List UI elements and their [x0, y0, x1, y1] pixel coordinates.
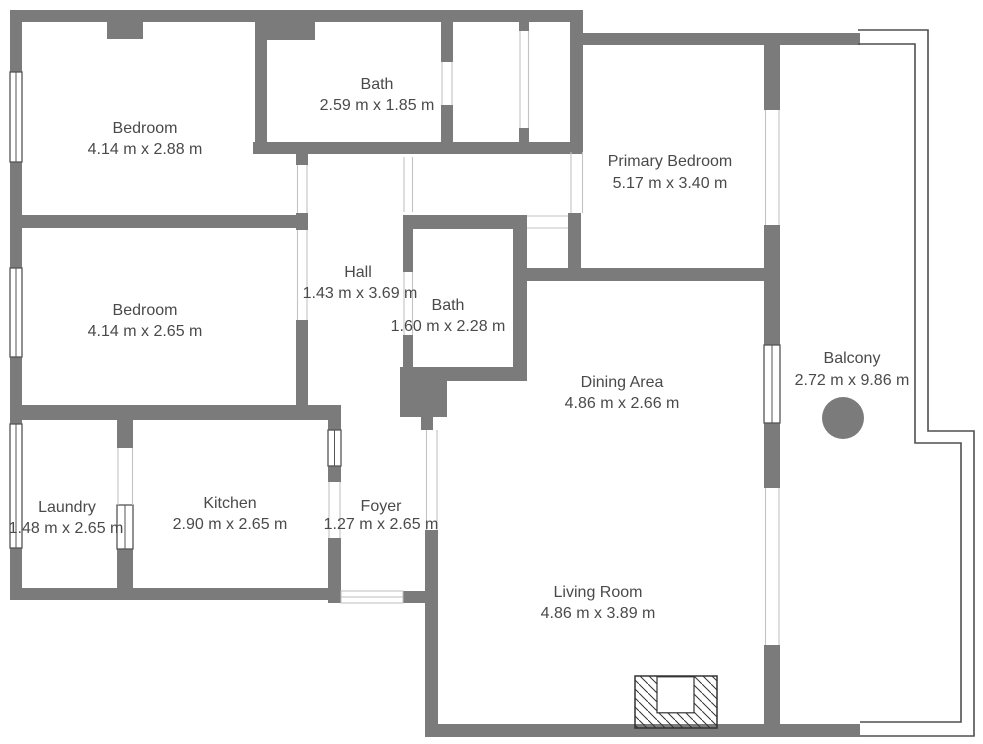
room-dims: 1.27 m x 2.65 m — [324, 516, 439, 533]
wall-segment — [764, 225, 780, 345]
wall-segment — [421, 417, 433, 430]
window — [10, 268, 22, 357]
room-name: Bath — [432, 297, 465, 314]
room-label-living-room: Living Room 4.86 m x 3.89 m — [541, 584, 656, 622]
room-dims: 4.14 m x 2.65 m — [88, 323, 203, 340]
room-label-hall: Hall 1.43 m x 3.69 m — [303, 264, 418, 302]
door-opening — [298, 165, 308, 213]
room-label-bedroom-2: Bedroom 4.14 m x 2.65 m — [88, 302, 203, 340]
door-opening — [404, 157, 413, 212]
wall-segment — [764, 43, 780, 110]
room-label-laundry: Laundry 1.48 m x 2.65 m — [9, 499, 124, 537]
door-opening — [118, 448, 133, 505]
door-opening — [571, 152, 583, 213]
room-dims: 4.86 m x 3.89 m — [541, 605, 656, 622]
wall-segment — [425, 530, 438, 737]
wall-segment — [296, 152, 308, 165]
wall-segment — [296, 213, 308, 230]
door-opening — [766, 488, 780, 645]
wall-segment — [328, 466, 341, 482]
floor-plan: Bedroom 4.14 m x 2.88 m Bath 2.59 m x 1.… — [0, 0, 983, 744]
wall-segment — [10, 588, 341, 600]
window — [10, 72, 22, 162]
room-name: Kitchen — [203, 495, 256, 512]
room-name: Hall — [344, 264, 372, 281]
room-dims: 5.17 m x 3.40 m — [613, 175, 728, 192]
door-opening — [298, 230, 308, 320]
wall-segment — [519, 22, 529, 31]
wall-segment — [403, 335, 413, 367]
wall-segment — [513, 215, 527, 381]
wall-segment — [403, 215, 513, 229]
wall-segment — [328, 420, 341, 430]
wall-segment — [570, 10, 583, 152]
room-name: Dining Area — [581, 374, 664, 391]
room-name: Bedroom — [113, 302, 178, 319]
room-dims: 2.72 m x 9.86 m — [795, 372, 910, 389]
wall-segment — [255, 22, 315, 40]
room-name: Laundry — [38, 499, 96, 516]
room-label-balcony: Balcony 2.72 m x 9.86 m — [795, 350, 910, 389]
entrance-opening — [341, 591, 403, 603]
room-name: Bath — [361, 76, 394, 93]
fireplace-icon — [635, 676, 717, 728]
wall-segment — [764, 645, 780, 737]
door-opening — [442, 62, 452, 105]
room-dims: 1.60 m x 2.28 m — [391, 318, 506, 335]
wall-segment — [255, 40, 267, 147]
room-label-kitchen: Kitchen 2.90 m x 2.65 m — [173, 495, 288, 533]
room-dims: 2.90 m x 2.65 m — [173, 516, 288, 533]
room-name: Bedroom — [113, 120, 178, 137]
room-dims: 1.43 m x 3.69 m — [303, 285, 418, 302]
room-label-dining-area: Dining Area 4.86 m x 2.66 m — [565, 374, 680, 412]
wall-segment — [117, 420, 133, 448]
wall-segment — [403, 229, 413, 272]
room-name: Living Room — [554, 584, 643, 601]
wall-segment — [570, 33, 860, 45]
window — [764, 345, 780, 423]
wall-segment — [400, 367, 447, 417]
room-name: Primary Bedroom — [608, 153, 732, 170]
wall-segment — [10, 10, 583, 22]
wall-segment — [296, 320, 308, 405]
floor-plan-canvas: Bedroom 4.14 m x 2.88 m Bath 2.59 m x 1.… — [0, 0, 983, 744]
room-dims: 2.59 m x 1.85 m — [320, 97, 435, 114]
wall-segment — [441, 105, 453, 154]
table-icon — [822, 397, 864, 439]
wall-segment — [22, 215, 305, 228]
wall-segment — [441, 22, 453, 62]
room-dims: 4.86 m x 2.66 m — [565, 395, 680, 412]
wall-segment — [117, 549, 133, 590]
room-label-bedroom-1: Bedroom 4.14 m x 2.88 m — [88, 120, 203, 158]
room-name: Balcony — [824, 350, 881, 367]
wall-segment — [520, 268, 764, 281]
wall-segment — [22, 405, 341, 420]
room-dims: 1.48 m x 2.65 m — [9, 520, 124, 537]
room-label-foyer: Foyer 1.27 m x 2.65 m — [324, 498, 439, 533]
door-opening — [427, 430, 438, 530]
room-dims: 4.14 m x 2.88 m — [88, 141, 203, 158]
wall-segment — [328, 538, 341, 603]
room-label-primary-bedroom: Primary Bedroom 5.17 m x 3.40 m — [608, 153, 732, 192]
wall-segment — [764, 423, 780, 488]
door-opening — [766, 110, 780, 225]
room-name: Foyer — [361, 498, 403, 515]
door-opening — [527, 216, 568, 228]
room-label-bath-1: Bath 2.59 m x 1.85 m — [320, 76, 435, 114]
wall-segment — [107, 22, 143, 39]
window — [328, 430, 341, 466]
room-label-bath-2: Bath 1.60 m x 2.28 m — [391, 297, 506, 335]
wall-segment — [519, 128, 529, 154]
door-opening — [520, 31, 529, 128]
